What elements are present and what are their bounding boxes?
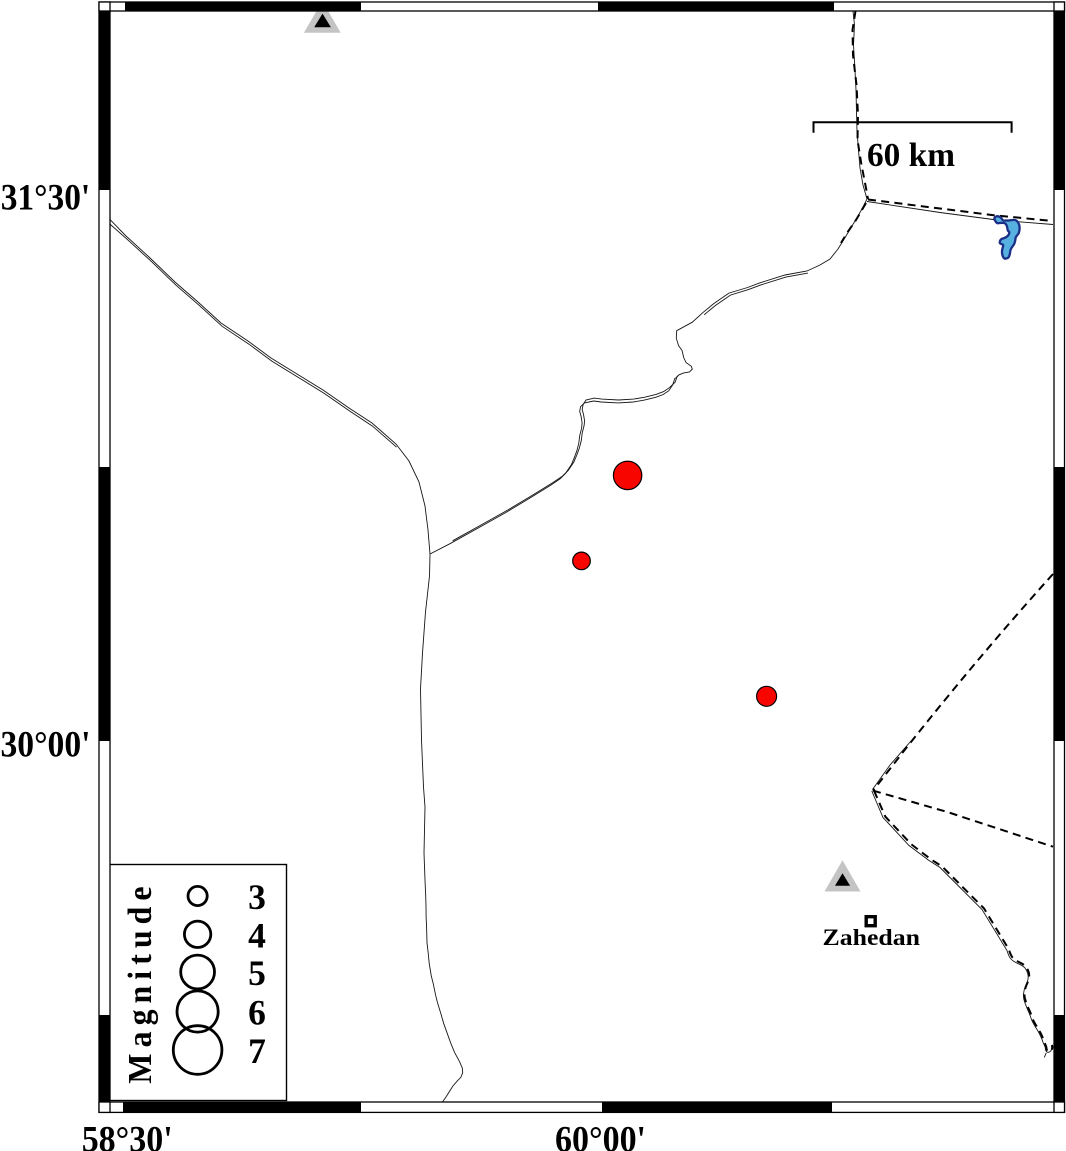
svg-text:6: 6 (248, 993, 266, 1033)
svg-text:60°00': 60°00' (555, 1119, 646, 1151)
svg-text:Zahedan: Zahedan (823, 925, 921, 950)
svg-text:4: 4 (248, 915, 266, 955)
svg-text:3: 3 (248, 877, 266, 917)
svg-text:7: 7 (248, 1031, 266, 1071)
svg-text:58°30': 58°30' (82, 1119, 173, 1151)
svg-text:60 km: 60 km (867, 137, 955, 174)
svg-text:5: 5 (248, 953, 266, 993)
svg-text:30°00': 30°00' (1, 724, 91, 765)
svg-text:31°30': 31°30' (1, 178, 91, 219)
